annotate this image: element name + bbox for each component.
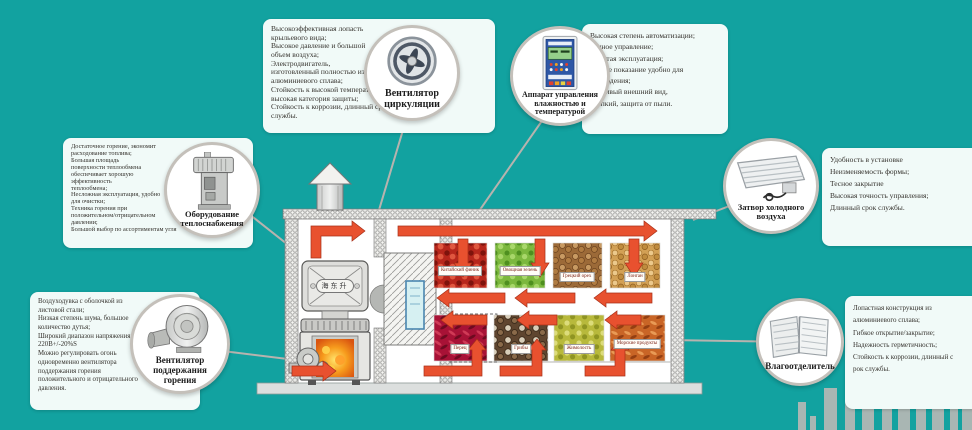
humidity-sensor <box>406 281 424 329</box>
control-unit-callout: Аппарат управления влажностью и температ… <box>510 26 610 126</box>
roof <box>283 209 716 219</box>
moisture-separator-callout: Влагоотделитель <box>756 298 844 386</box>
heat-supply-callout: Оборудование теплоснабжения <box>164 142 260 238</box>
combustion-fan-image <box>143 302 217 356</box>
moisture-separator-features-text: Лопастная конструкция из алюминиевого сп… <box>853 302 972 376</box>
control-unit-label: Аппарат управления влажностью и температ… <box>522 91 598 117</box>
cold-air-valve-features-box: Удобность в установке Неизменяемость фор… <box>822 148 972 246</box>
heat-supply-image <box>181 152 243 210</box>
foundation <box>257 383 702 394</box>
combustion-fan-callout: Вентилятор поддержания горения <box>130 294 230 394</box>
cold-air-valve-features-text: Удобность в установке Неизменяемость фор… <box>830 154 972 214</box>
cold-air-valve-callout: Затвор холодного воздуха <box>723 138 819 234</box>
circulation-fan-image <box>376 36 448 88</box>
product-label-chrysanthemum: Жимолость <box>564 344 595 354</box>
stove-brand-plate: 海东升 <box>316 279 354 293</box>
cold-air-valve-label: Затвор холодного воздуха <box>738 203 805 222</box>
product-label-jujube: Китайский финик <box>438 266 482 276</box>
product-label-longan: Лонган <box>624 272 645 282</box>
product-label-mushroom: Грибы <box>511 344 531 354</box>
cold-air-valve-image <box>731 151 811 203</box>
moisture-separator-label: Влагоотделитель <box>765 362 835 372</box>
product-label-seafood: Морские продукты <box>614 339 661 349</box>
product-label-walnut: Грецкий орех <box>560 272 595 282</box>
tray-chrysanthemum <box>554 315 604 361</box>
heat-supply-label: Оборудование теплоснабжения <box>180 210 243 229</box>
right-wall <box>671 219 684 383</box>
combustion-fan-label: Вентилятор поддержания горения <box>153 356 207 386</box>
circulation-fan-callout: Вентилятор циркуляции <box>364 25 460 121</box>
product-label-greens: Овощная зелень <box>500 266 541 276</box>
moisture-separator-features-box: Лопастная конструкция из алюминиевого сп… <box>845 296 972 409</box>
moisture-separator-image <box>765 312 835 362</box>
left-wall <box>285 219 298 383</box>
infographic-stage: Высокоэффективная лопасть крыльевого вид… <box>0 0 972 430</box>
product-label-chili: Перец <box>450 344 469 354</box>
chimney <box>309 163 351 210</box>
circulation-fan-label: Вентилятор циркуляции <box>384 88 440 110</box>
control-unit-image <box>534 35 586 91</box>
